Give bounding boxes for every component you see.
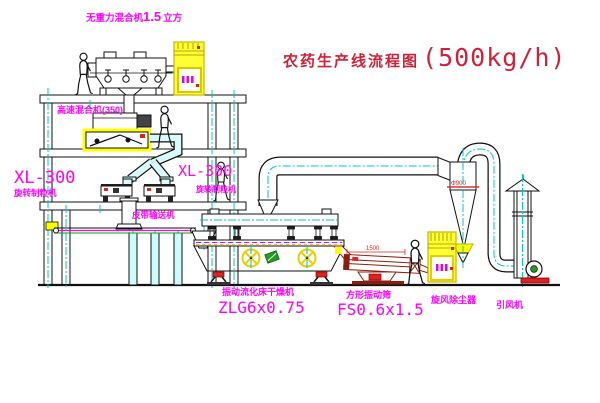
granulator-right-name: 旋转制粒机 (195, 184, 236, 194)
gravity-mixer-label: 无重力混合机1.5立方 (85, 9, 183, 24)
mixer-inlet-left (104, 52, 116, 58)
control-cabinet-right (428, 232, 456, 282)
control-cabinet-top (174, 42, 204, 95)
cyclone-diameter-dim: Φ900 (451, 181, 466, 187)
fan-motor (531, 266, 538, 273)
cad-canvas: Φ900 (0, 0, 600, 403)
mixer-discharge-chute (124, 95, 134, 115)
cabinet-display-marks (182, 76, 194, 83)
discharge-highlight (335, 247, 341, 254)
mixer-discharge-hopper (118, 88, 142, 95)
granulator-right-unit (144, 179, 175, 202)
granulator-left-name: 旋转制粒机 (13, 188, 57, 198)
screen-spout (420, 264, 428, 272)
granulator-left-model: XL-300 (14, 168, 75, 188)
dryer-green-sticker (265, 251, 279, 264)
high-speed-mixer-label: 高速混合机(350) (57, 104, 123, 115)
floor-slab-top (40, 95, 246, 103)
dryer-name-label: 振动流化床干燥机 (222, 286, 294, 297)
granulator-right-model: XL-300 (178, 162, 232, 180)
conveyor-leg (129, 233, 137, 285)
screen-length-dim: 1500 (366, 246, 380, 252)
mixer-foot-left (100, 88, 106, 95)
screen-foot (352, 281, 404, 285)
cabinet-display-marks (436, 264, 448, 271)
fan-label: 引风机 (496, 299, 523, 310)
mixer-foot-right (156, 88, 162, 95)
dryer-model-label: ZLG6x0.75 (218, 298, 305, 317)
dryer-exhaust-funnel (258, 200, 278, 214)
fluid-bed-dryer (194, 209, 354, 285)
cyclone-label: 旋风除尘器 (430, 294, 477, 305)
belt-conveyor (46, 222, 216, 285)
screen-name-label: 方形振动筛 (346, 289, 391, 300)
mixer-motor (137, 115, 151, 127)
fan-base (521, 278, 549, 283)
dryer-leg-right (310, 272, 333, 285)
dryer-spring-mounts (209, 227, 338, 240)
conveyor-leg (151, 233, 159, 285)
screen-model-label: FS0.6x1.5 (337, 300, 424, 319)
belt-conveyor-label: 皮带输送机 (131, 210, 175, 220)
mixer-housing-highlight (84, 130, 150, 150)
mixer-inlet-right (134, 52, 146, 58)
high-speed-mixer (84, 113, 151, 150)
diagram-title: 农药生产线流程图(500kg/h) (282, 43, 566, 72)
flow-diagram: Φ900 (0, 0, 600, 403)
conveyor-leg (174, 233, 182, 285)
